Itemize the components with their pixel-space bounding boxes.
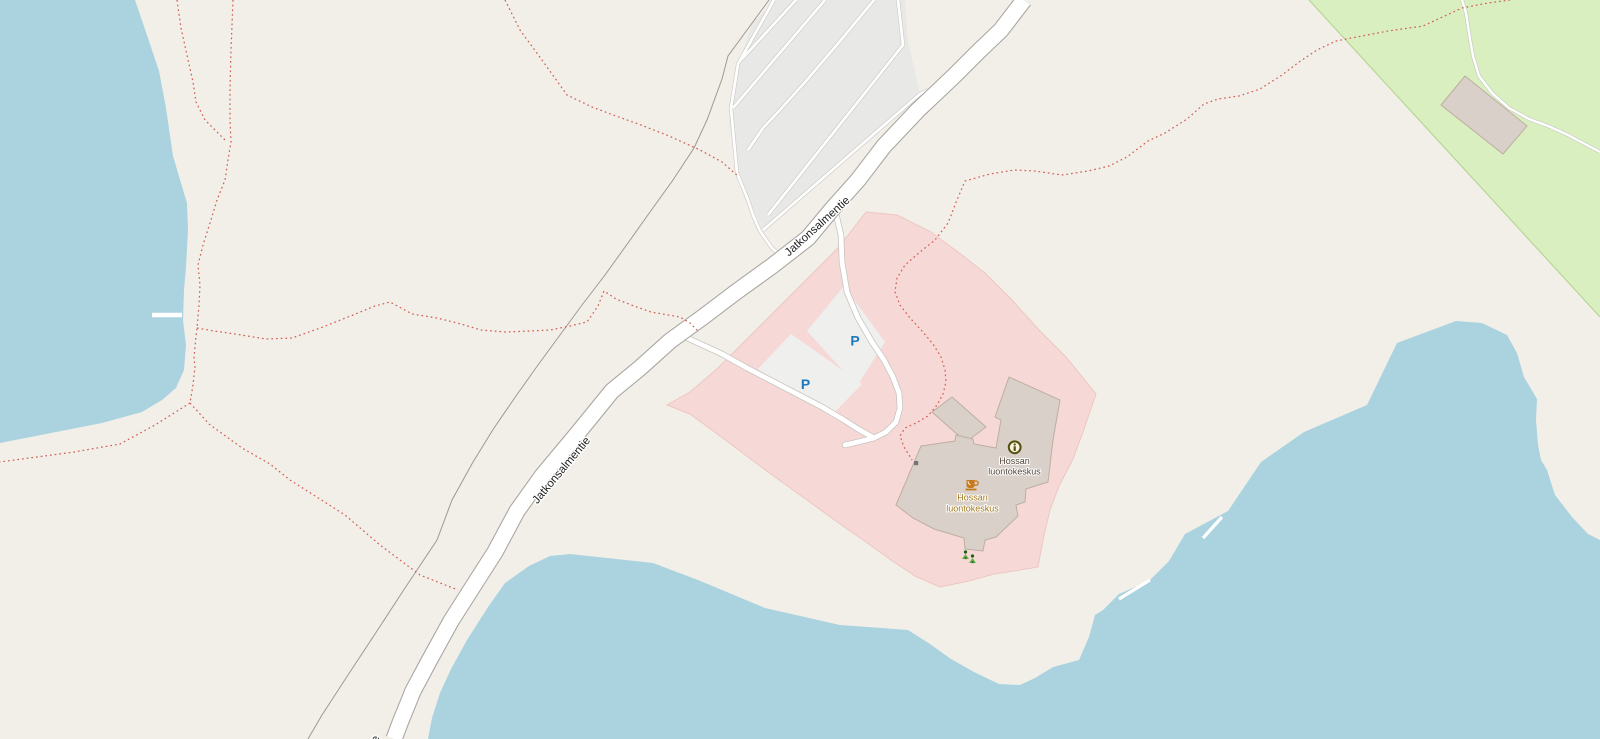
svg-text:P: P [801,376,810,392]
svg-text:Hossan: Hossan [999,456,1030,466]
svg-text:luontokeskus: luontokeskus [988,467,1041,477]
svg-text:P: P [850,333,859,349]
svg-text:luontokeskus: luontokeskus [946,504,999,514]
svg-text:Hossan: Hossan [957,493,988,503]
